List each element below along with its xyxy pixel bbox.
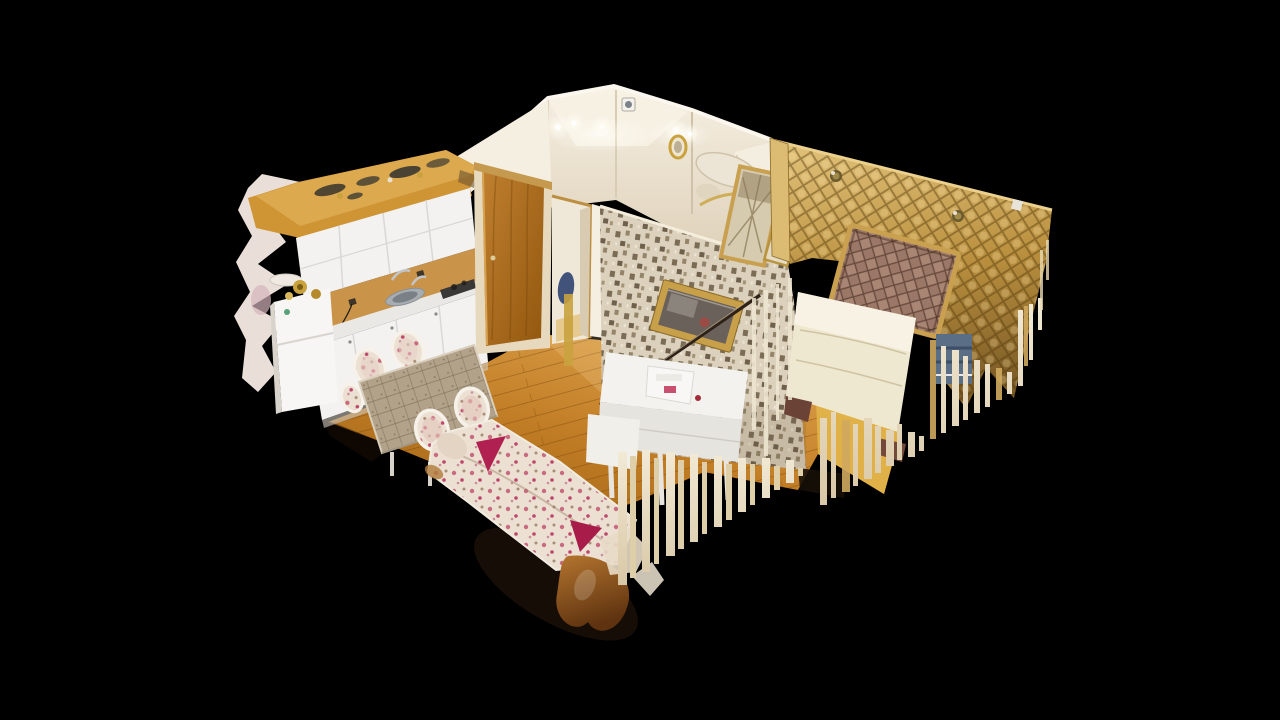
gold-wall-mirror [670, 136, 686, 158]
fridge-logo [284, 309, 290, 315]
door-handle [491, 256, 496, 261]
gold-beam [564, 294, 573, 366]
wall-sconce [830, 170, 842, 182]
dollhouse-render [0, 0, 1280, 720]
wall-sconce [952, 210, 964, 222]
dollhouse-3d-viewport[interactable] [0, 0, 1280, 720]
refrigerator [270, 288, 338, 414]
gold-corner-trim [770, 138, 790, 262]
wall-vent [622, 98, 635, 111]
